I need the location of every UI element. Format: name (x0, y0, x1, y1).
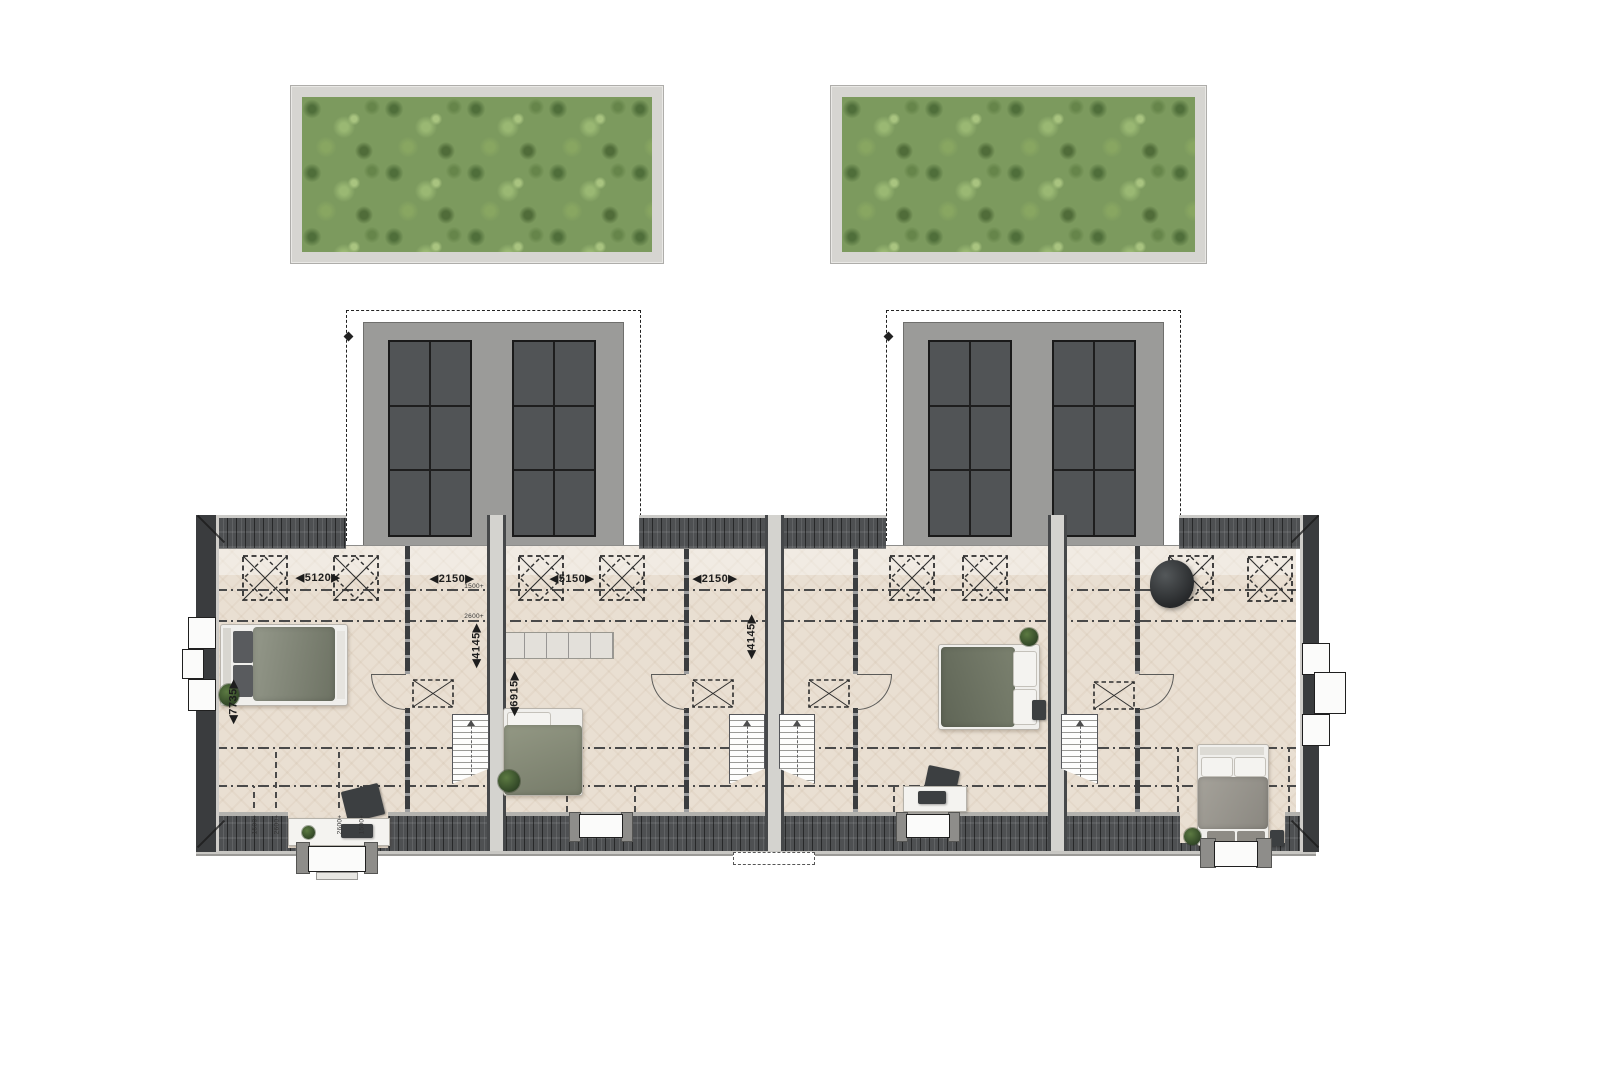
bed-unit4 (1197, 744, 1269, 846)
wall-unit3 (853, 545, 858, 674)
window-right-pane-bottom (1302, 714, 1330, 746)
party-wall (487, 515, 506, 851)
window-left-pane-bottom (188, 679, 216, 711)
bottom-window-unit3 (906, 814, 950, 838)
duvet (941, 647, 1015, 727)
pillow (233, 631, 253, 663)
window-left-pane-top (188, 617, 216, 649)
height-mark-bottom: 1500+ (359, 808, 366, 842)
height-mark-2600-top: 2600+ (440, 613, 484, 620)
skylight-icon (1247, 556, 1293, 602)
height-mark-bottom: 1500+ (252, 808, 259, 842)
closet-icon (808, 679, 850, 708)
bottom-window-unit2 (579, 814, 623, 838)
desk (903, 786, 967, 812)
party-wall (765, 515, 784, 851)
wall-unit2 (684, 545, 689, 674)
laptop (341, 824, 373, 838)
footboard (337, 631, 345, 699)
desk-plant (302, 826, 315, 839)
dim-label-room1-depth: ◀7735▶ (227, 660, 240, 744)
dim-label-hall2-width: ◀2150▶ (673, 572, 757, 585)
plant (1020, 628, 1038, 646)
dormer-right-window-b (1052, 340, 1136, 537)
closet-icon (692, 679, 734, 708)
nightstand (1270, 830, 1284, 846)
dormer-right-window-a (928, 340, 1012, 537)
duvet (1198, 777, 1268, 829)
wall-unit2 (684, 708, 689, 812)
height-mark-bottom: 2600+ (337, 808, 344, 842)
window-post (364, 842, 378, 874)
green-roof-right (830, 85, 1207, 264)
window-post (1256, 838, 1272, 868)
height-line-stub (1177, 748, 1179, 812)
green-roof-left (290, 85, 664, 264)
bed-unit3 (938, 644, 1040, 730)
grass-texture (302, 97, 652, 252)
wall-unit4 (1135, 708, 1140, 812)
bottom-window-unit1 (308, 846, 366, 872)
closet-icon (1093, 681, 1135, 710)
height-line-stub (1288, 748, 1290, 812)
party-wall (1048, 515, 1067, 851)
duvet (253, 627, 335, 701)
headboard (1200, 747, 1264, 755)
wall-unit4 (1135, 545, 1140, 674)
pillow (1201, 757, 1233, 777)
wall-unit3 (853, 708, 858, 812)
nightstand (1032, 700, 1046, 720)
height-mark-1500-top: 1500+ (440, 583, 484, 590)
window-right-sill (1314, 672, 1346, 714)
skylight-icon (962, 555, 1008, 601)
height-mark-bottom: 2600+ (274, 808, 281, 842)
pillow (1013, 651, 1037, 687)
dormer-left-window-a (388, 340, 472, 537)
grass-texture (842, 97, 1195, 252)
laptop (918, 791, 946, 804)
closet-icon (412, 679, 454, 708)
roof-edge-top (639, 515, 886, 549)
roof-edge-top (1179, 515, 1316, 549)
plant (498, 770, 520, 792)
window-step (316, 872, 358, 880)
wall-unit1 (405, 708, 410, 812)
roof-vent-dashed (733, 852, 815, 865)
skylight-icon (889, 555, 935, 601)
dim-label-room2-width: ◀5150▶ (530, 572, 614, 585)
pillow (1234, 757, 1266, 777)
window-left-sill (182, 649, 204, 679)
wall-unit1 (405, 545, 410, 674)
dormer-left-window-b (512, 340, 596, 537)
bottom-window-unit4 (1214, 841, 1258, 867)
height-line-stub (893, 786, 895, 812)
dim-label-hall2-depth: ◀4145▶ (745, 595, 758, 679)
dim-label-room1-width: ◀5120▶ (276, 571, 360, 584)
height-line-stub (634, 786, 636, 812)
dim-label-room2-depth: ◀6915▶ (508, 652, 521, 736)
window-right-pane-top (1302, 643, 1330, 675)
plant (1184, 828, 1201, 845)
floor-plan-canvas: ◀5120▶ ◀2150▶ ◀5150▶ ◀2150▶ ◀7735▶ ◀4145… (0, 0, 1620, 1080)
